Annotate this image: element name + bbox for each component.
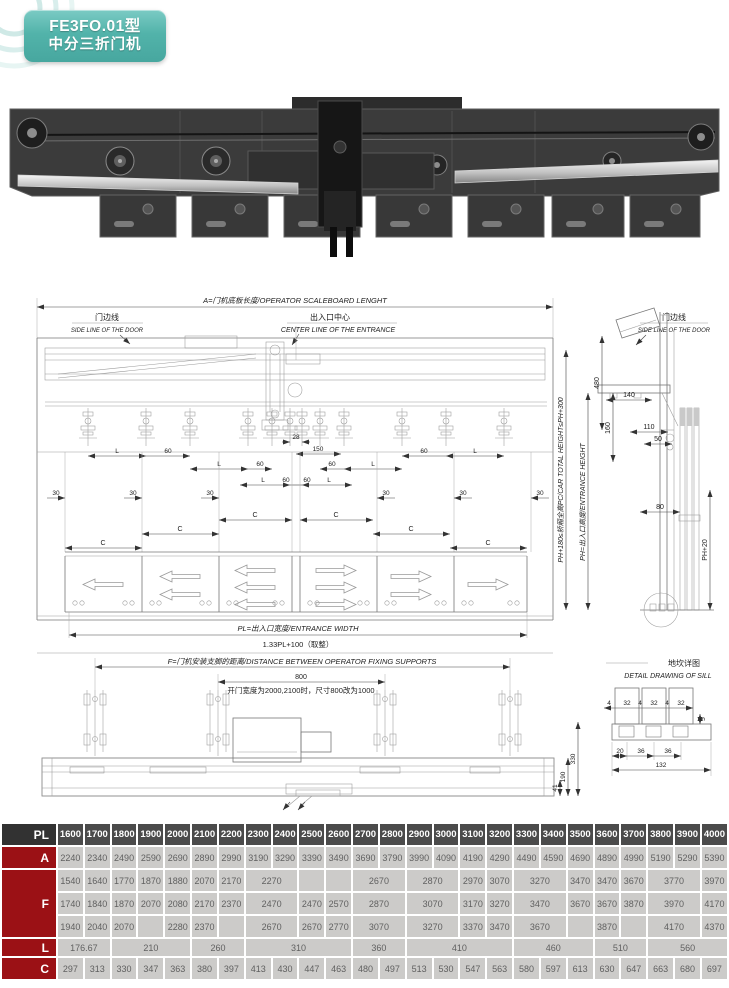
table-cell: 663 xyxy=(648,958,673,979)
technical-drawing: A=门机底板长度/OPERATOR SCALEBOARD LENGHT 门边线 … xyxy=(0,290,729,820)
table-cell: 3670 xyxy=(514,916,566,937)
table-cell: 647 xyxy=(621,958,646,979)
column-header: 2800 xyxy=(380,824,405,845)
table-cell: 513 xyxy=(407,958,432,979)
table-cell: 480 xyxy=(353,958,378,979)
table-cell: 2170 xyxy=(192,893,217,914)
table-cell: 260 xyxy=(192,939,244,956)
table-cell: 4370 xyxy=(702,916,727,937)
model-code: FE3FO.01型 xyxy=(49,18,141,37)
table-cell: 3070 xyxy=(353,916,405,937)
column-header: 2000 xyxy=(165,824,190,845)
table-cell: 463 xyxy=(326,958,351,979)
column-header: 2300 xyxy=(246,824,271,845)
table-cell: 3190 xyxy=(246,847,271,868)
table-cell: 3690 xyxy=(353,847,378,868)
table-cell: 1640 xyxy=(85,870,110,891)
dim-label: 36 xyxy=(664,748,672,755)
table-cell: 580 xyxy=(514,958,539,979)
table-cell: 3790 xyxy=(380,847,405,868)
dim-label: 4 xyxy=(638,700,642,707)
table-cell: 3290 xyxy=(273,847,298,868)
table-cell: 3970 xyxy=(648,893,700,914)
entrance-width-label: PL=出入口宽度/ENTRANCE WIDTH xyxy=(237,624,359,633)
column-header: 2900 xyxy=(407,824,432,845)
dim-label: 36 xyxy=(637,748,645,755)
table-cell: 3970 xyxy=(702,870,727,891)
table-cell: 2470 xyxy=(299,893,324,914)
dim-label: C xyxy=(252,512,257,519)
table-cell: 2590 xyxy=(138,847,163,868)
table-cell: 3070 xyxy=(487,870,512,891)
column-header: 3900 xyxy=(675,824,700,845)
table-cell: 4590 xyxy=(541,847,566,868)
panel-width-dimensions: C C C C C C xyxy=(65,512,527,548)
dim-label: 30 xyxy=(536,490,544,497)
table-cell: 330 xyxy=(112,958,137,979)
column-header: 3000 xyxy=(434,824,459,845)
dim-label: 30 xyxy=(206,490,214,497)
model-badge: FE3FO.01型 中分三折门机 xyxy=(24,10,166,62)
table-cell: 3070 xyxy=(407,893,459,914)
table-cell: 1740 xyxy=(58,893,83,914)
table-cell: 210 xyxy=(112,939,190,956)
column-header: 1700 xyxy=(85,824,110,845)
table-cell: 2870 xyxy=(407,870,459,891)
dim-label: 50 xyxy=(654,436,662,443)
dim-label: 60 xyxy=(303,477,311,484)
table-cell: 1870 xyxy=(112,893,137,914)
entrance-center-en: CENTER LINE OF THE ENTRANCE xyxy=(281,327,396,334)
dim-label: L xyxy=(371,461,375,468)
model-name: 中分三折门机 xyxy=(49,36,142,54)
table-cell: 1880 xyxy=(165,870,190,891)
table-cell: 347 xyxy=(138,958,163,979)
table-cell: 4170 xyxy=(702,893,727,914)
dim-label: 150 xyxy=(313,446,324,453)
panel-border-lines xyxy=(65,452,531,552)
table-cell: 3270 xyxy=(514,870,566,891)
dim-label: 20 xyxy=(616,748,624,755)
table-cell: 4990 xyxy=(621,847,646,868)
table-cell: 297 xyxy=(58,958,83,979)
table-cell: 2240 xyxy=(58,847,83,868)
table-cell: 3670 xyxy=(568,893,593,914)
column-header: 1900 xyxy=(138,824,163,845)
table-cell: 5390 xyxy=(702,847,727,868)
table-cell: 4090 xyxy=(434,847,459,868)
table-cell: 530 xyxy=(434,958,459,979)
table-cell: 3470 xyxy=(487,916,512,937)
table-cell: 547 xyxy=(460,958,485,979)
table-cell: 2670 xyxy=(246,916,298,937)
table-cell: 680 xyxy=(675,958,700,979)
table-cell: 2040 xyxy=(85,916,110,937)
table-cell: 3870 xyxy=(595,916,620,937)
table-cell: 460 xyxy=(514,939,592,956)
table-cell: 497 xyxy=(380,958,405,979)
table-cell: 4170 xyxy=(648,916,700,937)
side-line-left-en: SIDE LINE OF THE DOOR xyxy=(71,328,144,334)
dim-label: 32 xyxy=(650,700,658,707)
main-elevation-drawing: A=门机底板长度/OPERATOR SCALEBOARD LENGHT 门边线 … xyxy=(37,296,711,653)
dim-label: 80 xyxy=(656,504,664,511)
table-cell: 2080 xyxy=(165,893,190,914)
row-label-a: A xyxy=(2,847,56,868)
dim-label: 330 xyxy=(570,753,577,764)
scaleboard-formula: 1.33PL+100（取整） xyxy=(263,639,334,649)
table-cell: 2970 xyxy=(460,870,485,891)
dim-label: 5 xyxy=(700,717,707,721)
table-cell: 3870 xyxy=(621,893,646,914)
table-cell: 310 xyxy=(246,939,351,956)
table-cell: 3990 xyxy=(407,847,432,868)
table-cell: 3670 xyxy=(621,870,646,891)
sill-title-cn: 地坎详图 xyxy=(668,658,700,668)
table-cell: 1940 xyxy=(58,916,83,937)
car-total-height-label: PH+180≤轿厢全高PC/CAR TOTAL HEIGHT≤PH+300 xyxy=(557,397,565,562)
table-cell: 3490 xyxy=(326,847,351,868)
dim-label: 190 xyxy=(560,771,567,782)
column-header: 2400 xyxy=(273,824,298,845)
column-header: 3100 xyxy=(460,824,485,845)
table-cell: 2370 xyxy=(192,916,217,937)
row-label-c: C xyxy=(2,958,56,979)
door-hanger-plates xyxy=(100,195,700,237)
dim-label: 132 xyxy=(656,762,667,769)
dim-label: C xyxy=(408,526,413,533)
table-cell: 313 xyxy=(85,958,110,979)
table-cell: 2690 xyxy=(165,847,190,868)
dim-label: 160 xyxy=(605,422,612,434)
table-cell: 613 xyxy=(568,958,593,979)
table-cell: 360 xyxy=(353,939,405,956)
table-cell xyxy=(299,870,324,891)
dim-label: 30 xyxy=(52,490,60,497)
column-header: 1800 xyxy=(112,824,137,845)
dim-label: C xyxy=(485,540,490,547)
dim-label: 30 xyxy=(382,490,390,497)
section-view-drawing: 480 140 160 110 50 80 PH+20 PH+180≤轿厢全高P… xyxy=(557,308,714,627)
table-cell xyxy=(621,916,646,937)
product-photo xyxy=(0,95,729,260)
table-cell: 3170 xyxy=(460,893,485,914)
entrance-center-cn: 出入口中心 xyxy=(310,312,350,322)
spec-table: PL16001700180019002000210022002300240025… xyxy=(0,822,729,981)
fixing-note: 开门宽度为2000,2100时，尺寸800改为1000 xyxy=(227,685,374,695)
table-cell xyxy=(138,916,163,937)
table-cell: 413 xyxy=(246,958,271,979)
table-cell: 2570 xyxy=(326,893,351,914)
column-header: 3300 xyxy=(514,824,539,845)
dim-label: 4 xyxy=(607,700,611,707)
table-cell xyxy=(219,916,244,937)
table-cell: 1870 xyxy=(138,870,163,891)
dim-label: C xyxy=(333,512,338,519)
side-line-right-cn: 门边线 xyxy=(662,312,686,322)
dim-label: 110 xyxy=(643,424,654,431)
table-cell: 630 xyxy=(595,958,620,979)
catalog-page: FE3FO.01型 中分三折门机 xyxy=(0,0,729,988)
dim-label: 28 xyxy=(292,434,300,441)
table-cell xyxy=(568,916,593,937)
column-header: 2100 xyxy=(192,824,217,845)
dim-label: 480 xyxy=(594,377,601,389)
table-cell xyxy=(326,870,351,891)
table-cell: 2370 xyxy=(219,893,244,914)
column-header: 2500 xyxy=(299,824,324,845)
table-cell: 4690 xyxy=(568,847,593,868)
table-cell: 5290 xyxy=(675,847,700,868)
row-label-l: L xyxy=(2,939,56,956)
table-cell: 2890 xyxy=(192,847,217,868)
dim-label: L xyxy=(473,448,477,455)
table-cell: 3390 xyxy=(299,847,324,868)
panel-gap-dimensions: 30 30 30 30 30 30 xyxy=(47,490,549,498)
dim-label: L xyxy=(261,477,265,484)
dim-label: L xyxy=(327,477,331,484)
column-header: 3800 xyxy=(648,824,673,845)
table-cell: 2670 xyxy=(353,870,405,891)
column-header: 2700 xyxy=(353,824,378,845)
column-header: 2600 xyxy=(326,824,351,845)
table-cell: 2870 xyxy=(353,893,405,914)
table-cell: 2270 xyxy=(246,870,298,891)
fixing-distance-label: F=门机安装支脚的距离/DISTANCE BETWEEN OPERATOR FI… xyxy=(168,657,437,666)
dim-label: 32 xyxy=(677,700,685,707)
column-header: 4000 xyxy=(702,824,727,845)
table-cell: 2170 xyxy=(219,870,244,891)
table-cell: 2490 xyxy=(112,847,137,868)
dim-label: L xyxy=(115,448,119,455)
column-header: 2200 xyxy=(219,824,244,845)
table-cell: 4890 xyxy=(595,847,620,868)
table-cell: 3470 xyxy=(595,870,620,891)
sill-title-en: DETAIL DRAWING OF SILL xyxy=(624,673,712,680)
table-cell: 410 xyxy=(407,939,512,956)
table-cell: 2470 xyxy=(246,893,298,914)
row-label-pl: PL xyxy=(2,824,56,845)
dim-label: 30 xyxy=(459,490,467,497)
dim-label: 60 xyxy=(282,477,290,484)
dim-label: 60 xyxy=(420,448,428,455)
dim-label: 60 xyxy=(164,448,172,455)
table-cell: 1840 xyxy=(85,893,110,914)
side-line-right-en: SIDE LINE OF THE DOOR xyxy=(638,328,711,334)
table-cell: 2990 xyxy=(219,847,244,868)
table-cell: 563 xyxy=(487,958,512,979)
column-header: 3500 xyxy=(568,824,593,845)
dim-label: 60 xyxy=(328,461,336,468)
dim-label: 41 xyxy=(552,784,559,792)
table-cell: 2340 xyxy=(85,847,110,868)
entrance-height-label: PH=出入口高度/ENTRANCE HEIGHT xyxy=(579,442,587,560)
table-cell: 363 xyxy=(165,958,190,979)
hanger-dimension-chains: L 60 60 L L 60 60 L L 60 60 xyxy=(88,434,504,485)
dim-label: 4 xyxy=(665,700,669,707)
table-cell: 2070 xyxy=(112,916,137,937)
table-cell: 4290 xyxy=(487,847,512,868)
fixing-supports-drawing: F=门机安装支脚的距离/DISTANCE BETWEEN OPERATOR FI… xyxy=(42,657,578,810)
table-cell: 430 xyxy=(273,958,298,979)
table-cell: 560 xyxy=(648,939,727,956)
column-header: 1600 xyxy=(58,824,83,845)
table-cell: 1540 xyxy=(58,870,83,891)
table-cell: 3270 xyxy=(487,893,512,914)
dim-label: 32 xyxy=(623,700,631,707)
dim-label: PH+20 xyxy=(702,539,709,561)
table-cell: 3470 xyxy=(568,870,593,891)
table-cell: 3370 xyxy=(460,916,485,937)
column-header: 3200 xyxy=(487,824,512,845)
table-cell: 5190 xyxy=(648,847,673,868)
table-cell: 2070 xyxy=(192,870,217,891)
dim-label: 800 xyxy=(295,674,307,681)
dim-label: C xyxy=(177,526,182,533)
column-header: 3600 xyxy=(595,824,620,845)
row-label-f: F xyxy=(2,870,56,937)
dim-label: C xyxy=(100,540,105,547)
dim-label: 60 xyxy=(256,461,264,468)
table-cell: 176.67 xyxy=(58,939,110,956)
table-cell: 2280 xyxy=(165,916,190,937)
table-cell: 510 xyxy=(595,939,647,956)
table-cell: 3770 xyxy=(648,870,700,891)
table-cell: 3270 xyxy=(407,916,459,937)
table-cell: 380 xyxy=(192,958,217,979)
dim-label: 140 xyxy=(623,392,635,399)
table-cell: 3670 xyxy=(595,893,620,914)
column-header: 3400 xyxy=(541,824,566,845)
table-cell: 2670 xyxy=(299,916,324,937)
table-cell: 597 xyxy=(541,958,566,979)
table-cell: 397 xyxy=(219,958,244,979)
sill-detail-drawing: 地坎详图 DETAIL DRAWING OF SILL 4 32 4 32 4 … xyxy=(604,658,712,776)
table-cell: 2070 xyxy=(138,893,163,914)
table-cell: 2770 xyxy=(326,916,351,937)
table-cell: 4190 xyxy=(460,847,485,868)
column-header: 3700 xyxy=(621,824,646,845)
panel-guide-shoes xyxy=(73,601,519,605)
dim-label: 30 xyxy=(129,490,137,497)
table-cell: 447 xyxy=(299,958,324,979)
table-cell: 3470 xyxy=(514,893,566,914)
side-line-left-cn: 门边线 xyxy=(95,312,119,322)
table-cell: 697 xyxy=(702,958,727,979)
operator-length-label: A=门机底板长度/OPERATOR SCALEBOARD LENGHT xyxy=(202,296,388,305)
table-cell: 4490 xyxy=(514,847,539,868)
table-cell: 1770 xyxy=(112,870,137,891)
